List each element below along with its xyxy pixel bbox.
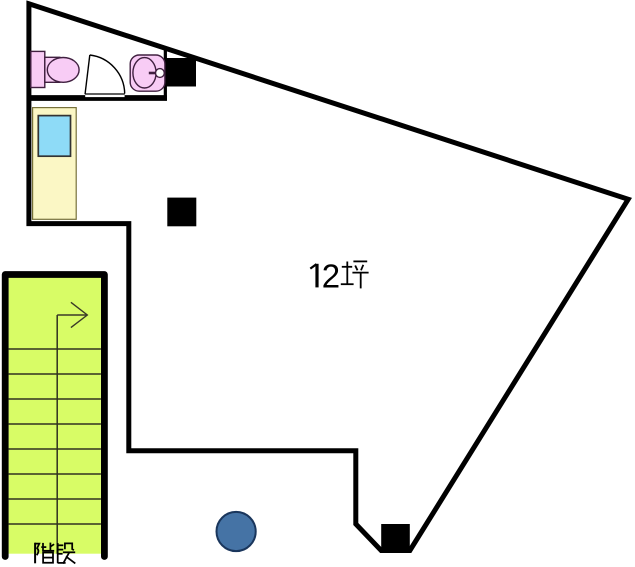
svg-text:2: 2 <box>322 258 340 295</box>
